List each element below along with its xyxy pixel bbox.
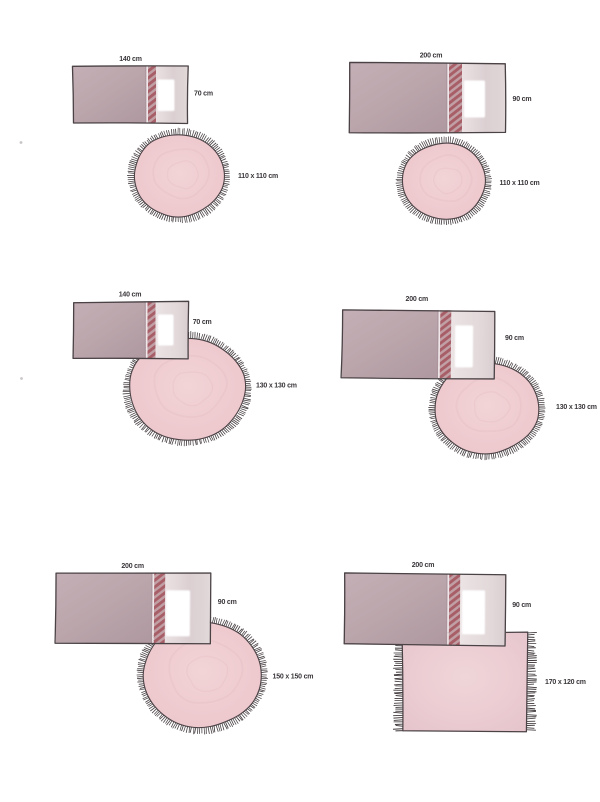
svg-text:70 cm: 70 cm: [194, 91, 213, 98]
svg-text:200 cm: 200 cm: [412, 562, 435, 569]
svg-text:130 x 130 cm: 130 x 130 cm: [556, 404, 597, 411]
svg-text:110 x 110 cm: 110 x 110 cm: [238, 173, 278, 180]
svg-text:90 cm: 90 cm: [512, 602, 531, 609]
svg-text:90 cm: 90 cm: [505, 335, 524, 342]
svg-text:200 cm: 200 cm: [406, 296, 429, 303]
svg-text:200 cm: 200 cm: [121, 563, 144, 570]
svg-text:140 cm: 140 cm: [119, 292, 142, 299]
svg-text:200 cm: 200 cm: [420, 53, 443, 60]
svg-text:130 x 130 cm: 130 x 130 cm: [256, 383, 297, 390]
svg-text:70 cm: 70 cm: [193, 319, 212, 326]
svg-text:90 cm: 90 cm: [218, 599, 237, 606]
svg-text:90 cm: 90 cm: [513, 96, 532, 103]
svg-text:140 cm: 140 cm: [119, 56, 142, 63]
svg-text:170 x 120 cm: 170 x 120 cm: [545, 679, 586, 686]
svg-text:150 x 150 cm: 150 x 150 cm: [273, 674, 314, 681]
svg-text:110 x 110 cm: 110 x 110 cm: [500, 180, 540, 187]
